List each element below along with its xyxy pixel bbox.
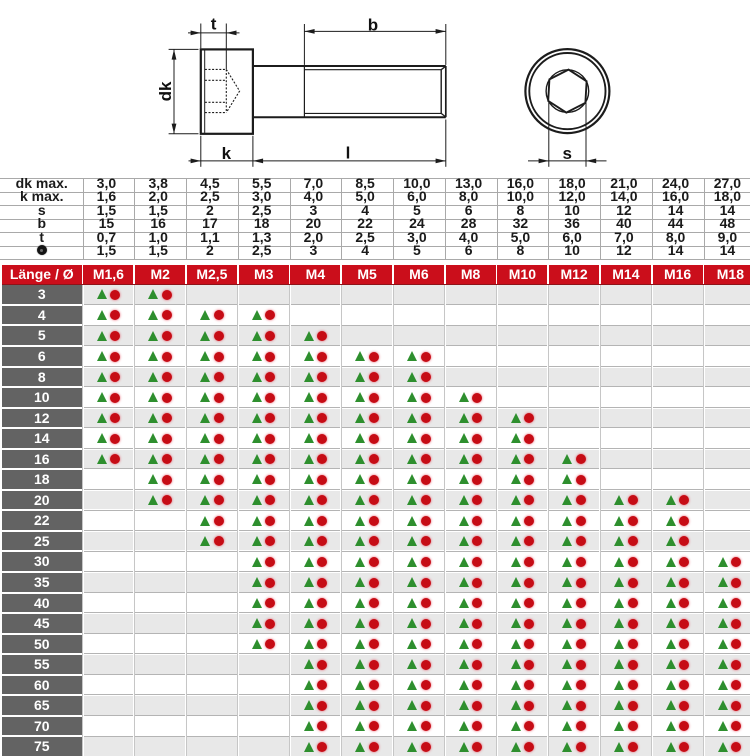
svg-text:b: b [368,16,378,35]
svg-text:t: t [211,15,217,34]
svg-text:k: k [222,144,232,163]
svg-text:s: s [562,144,571,163]
svg-text:dk: dk [156,81,175,101]
svg-text:l: l [346,143,351,162]
